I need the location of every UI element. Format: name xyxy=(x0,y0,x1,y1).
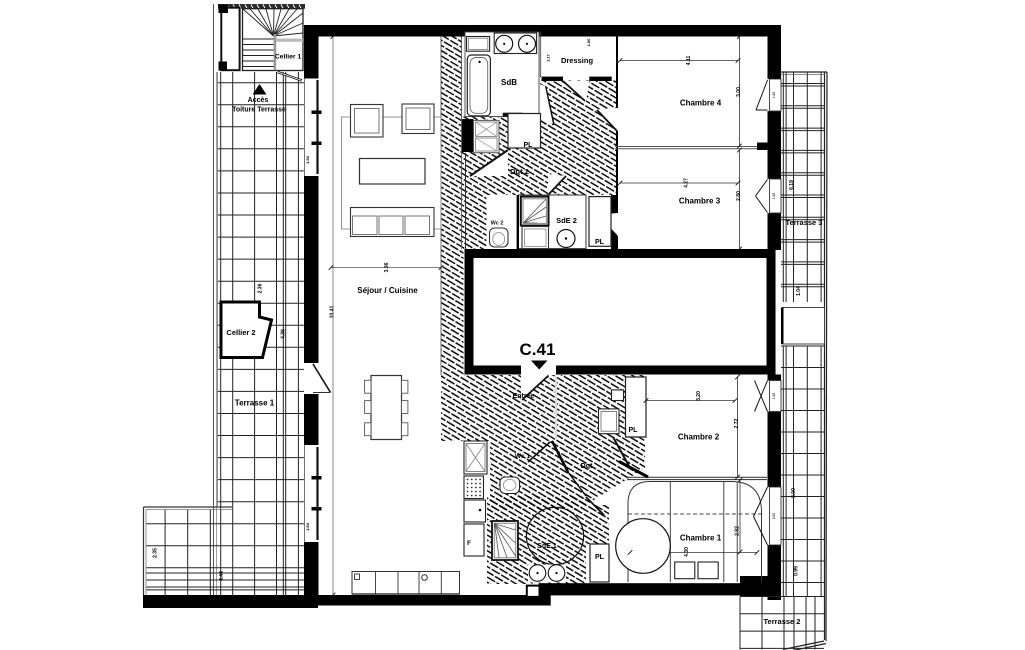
svg-text:3.00: 3.00 xyxy=(736,87,742,97)
svg-text:Cellier 2: Cellier 2 xyxy=(226,328,255,337)
svg-text:4.27: 4.27 xyxy=(684,178,690,188)
svg-text:8.00: 8.00 xyxy=(791,488,797,498)
svg-text:2.00: 2.00 xyxy=(772,513,776,519)
svg-text:6.19: 6.19 xyxy=(789,180,795,190)
svg-text:1.94: 1.94 xyxy=(305,522,310,531)
svg-text:Cellier 1: Cellier 1 xyxy=(275,54,302,61)
svg-text:Chambre 2: Chambre 2 xyxy=(678,433,720,442)
svg-text:1.04: 1.04 xyxy=(796,286,802,296)
svg-text:Chambre 1: Chambre 1 xyxy=(680,534,722,543)
svg-text:Toiture Terrasse: Toiture Terrasse xyxy=(232,107,286,114)
svg-text:PL: PL xyxy=(524,142,534,149)
svg-text:3.20: 3.20 xyxy=(696,391,702,401)
svg-text:PL: PL xyxy=(595,239,605,246)
svg-text:4.44: 4.44 xyxy=(219,571,225,581)
svg-text:Dressing: Dressing xyxy=(561,56,594,65)
svg-text:Terrasse 2: Terrasse 2 xyxy=(764,617,801,626)
svg-text:Dgt 2: Dgt 2 xyxy=(510,167,529,176)
svg-text:PL: PL xyxy=(595,554,605,561)
svg-text:Terrasse 3: Terrasse 3 xyxy=(786,218,823,227)
svg-text:1.50: 1.50 xyxy=(586,38,591,47)
svg-text:Wc 1: Wc 1 xyxy=(515,453,531,460)
svg-text:2.35: 2.35 xyxy=(153,548,159,558)
svg-text:2.72: 2.72 xyxy=(734,418,740,428)
svg-text:SdB: SdB xyxy=(501,78,517,87)
svg-text:1.17: 1.17 xyxy=(546,53,551,62)
svg-text:C.41: C.41 xyxy=(520,340,556,359)
svg-text:Séjour / Cuisine: Séjour / Cuisine xyxy=(357,286,418,295)
svg-text:4.30: 4.30 xyxy=(684,547,690,557)
svg-text:Wc 2: Wc 2 xyxy=(491,221,504,227)
svg-text:1.00: 1.00 xyxy=(772,92,776,98)
svg-text:SdE 1: SdE 1 xyxy=(537,543,557,550)
svg-text:1.00: 1.00 xyxy=(772,393,776,399)
svg-text:Chambre 3: Chambre 3 xyxy=(679,197,721,206)
svg-text:2.36: 2.36 xyxy=(258,283,264,293)
svg-text:Dgt: Dgt xyxy=(581,463,593,470)
svg-text:1.94: 1.94 xyxy=(305,155,310,164)
svg-text:Accès: Accès xyxy=(248,97,269,104)
svg-text:2.80: 2.80 xyxy=(736,191,742,201)
svg-text:4.36: 4.36 xyxy=(281,329,287,339)
svg-text:F: F xyxy=(467,540,471,547)
svg-text:10.41: 10.41 xyxy=(330,306,336,319)
svg-text:Terrasse 1: Terrasse 1 xyxy=(235,399,275,408)
svg-text:Chambre 4: Chambre 4 xyxy=(680,99,722,108)
svg-text:1.00: 1.00 xyxy=(772,193,776,199)
svg-text:PL: PL xyxy=(629,427,639,434)
svg-text:0.99: 0.99 xyxy=(794,566,800,576)
svg-text:SdE 2: SdE 2 xyxy=(556,216,577,225)
svg-text:4.11: 4.11 xyxy=(686,56,692,66)
svg-text:Entrée: Entrée xyxy=(513,393,535,400)
